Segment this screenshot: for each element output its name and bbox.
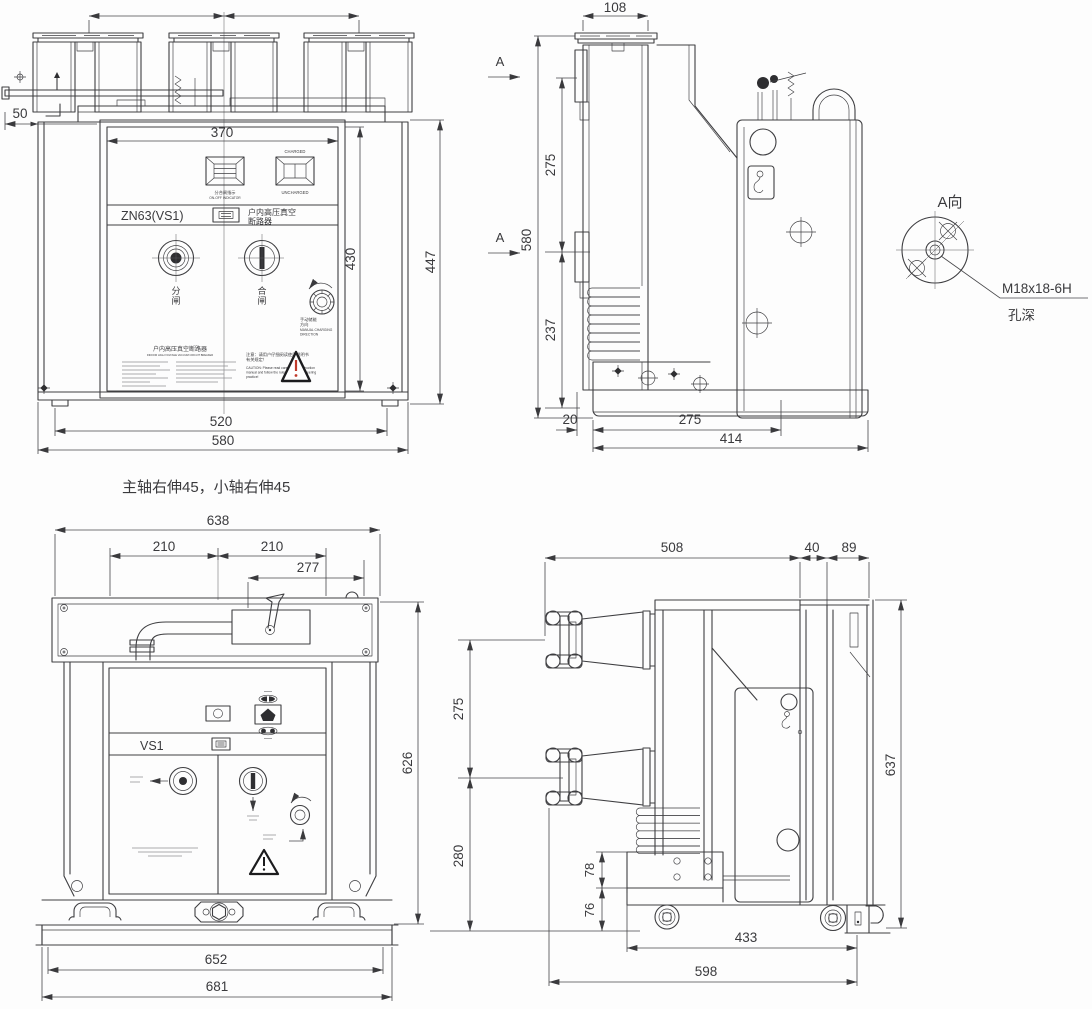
dim-275-upper: 275 bbox=[543, 154, 558, 177]
dim-598: 598 bbox=[695, 964, 718, 979]
caution-cn-line2: 有关规定！ bbox=[246, 356, 267, 363]
dim-210-left: 210 bbox=[153, 539, 176, 554]
counter-window-icon bbox=[206, 706, 230, 721]
terminal-bracket bbox=[627, 852, 790, 888]
plate-screws bbox=[61, 605, 370, 656]
dim-76: 76 bbox=[582, 903, 597, 917]
manual-charging-en1: MANUAL CHARGING bbox=[300, 328, 333, 332]
dim-50: 50 bbox=[12, 106, 27, 121]
dim-580-side: 580 bbox=[519, 229, 534, 252]
product-name-line1: 户内高压真空 bbox=[248, 207, 296, 217]
manual-charging-cn2: 方向 bbox=[300, 321, 308, 328]
hook-icon bbox=[782, 712, 790, 729]
pull-handle-icon bbox=[69, 903, 121, 920]
dim-520: 520 bbox=[210, 414, 233, 429]
conduit-elbow bbox=[130, 622, 232, 660]
uncharged-label: UNCHARGED bbox=[282, 190, 309, 195]
bottom-side-view: 508 40 89 bbox=[430, 540, 907, 986]
dim-580: 580 bbox=[212, 433, 235, 448]
dim-430: 430 bbox=[343, 248, 358, 271]
section-a-bottom: A bbox=[496, 230, 505, 245]
drawing-sheet: 370 分合闸指示 ON-OFF INDICATOR CHARGED UNCHA… bbox=[0, 0, 1092, 1009]
dim-637: 637 bbox=[883, 754, 898, 777]
dim-681: 681 bbox=[206, 979, 229, 994]
a-direction-view: A向 M18x18-6H 孔深 bbox=[896, 194, 1088, 323]
side-view: 108 A A bbox=[488, 0, 868, 452]
close-label-2: 闸 bbox=[257, 296, 266, 306]
close-button-icon bbox=[238, 234, 284, 282]
caution-en-line3: practice! bbox=[246, 375, 259, 379]
dim-89: 89 bbox=[841, 540, 856, 555]
model-label-vs1: VS1 bbox=[140, 739, 164, 753]
close-label-1: 合 bbox=[257, 285, 266, 296]
center-lock-plate bbox=[195, 902, 243, 922]
dim-210-right: 210 bbox=[261, 539, 284, 554]
warning-triangle-icon bbox=[250, 850, 278, 874]
bottom-front-view: 638 210 210 277 bbox=[36, 513, 424, 1001]
dim-275-base: 275 bbox=[679, 412, 702, 427]
dim-78: 78 bbox=[582, 863, 597, 877]
model-label: ZN63(VS1) bbox=[121, 209, 184, 223]
thread-spec-label: M18x18-6H bbox=[1002, 281, 1072, 296]
front-view: 370 分合闸指示 ON-OFF INDICATOR CHARGED UNCHA… bbox=[2, 12, 444, 454]
onoff-label-en: ON-OFF INDICATOR bbox=[209, 196, 241, 200]
hook-icon bbox=[748, 166, 774, 199]
breaker-outline-drawing: 370 分合闸指示 ON-OFF INDICATOR CHARGED UNCHA… bbox=[0, 0, 1092, 1009]
nameplate-subtitle: INDOOR HIGH VOLTAGE VACUUM CIRCUIT BREAK… bbox=[147, 353, 213, 357]
a-view-title: A向 bbox=[937, 194, 962, 211]
insulator-fins bbox=[636, 808, 700, 854]
dim-108: 108 bbox=[604, 0, 627, 15]
hole-depth-label: 孔深 bbox=[1008, 308, 1035, 323]
rear-wheel-icon bbox=[821, 906, 846, 931]
charging-knob-icon bbox=[309, 283, 334, 314]
dim-414: 414 bbox=[720, 431, 743, 446]
pin-hole-icon bbox=[908, 259, 926, 277]
spring-state-indicators bbox=[255, 692, 281, 739]
spring-mechanism bbox=[757, 72, 855, 120]
charging-knob-icon bbox=[263, 797, 311, 841]
dim-275-arm: 275 bbox=[451, 698, 466, 721]
pull-handle-icon bbox=[313, 903, 365, 920]
charged-label: CHARGED bbox=[285, 149, 306, 154]
open-button-icon bbox=[130, 768, 197, 795]
interlock-bracket bbox=[232, 594, 310, 644]
front-wheel-icon bbox=[655, 905, 679, 929]
dim-433: 433 bbox=[735, 930, 758, 945]
onoff-indicator-icon bbox=[206, 157, 244, 185]
dim-277: 277 bbox=[297, 560, 320, 575]
dim-237: 237 bbox=[543, 319, 558, 342]
dim-447: 447 bbox=[423, 251, 438, 274]
charged-indicator-icon bbox=[276, 157, 314, 185]
open-button-icon bbox=[152, 234, 200, 282]
upper-contact-arm bbox=[546, 611, 655, 669]
onoff-label-cn: 分合闸指示 bbox=[215, 189, 236, 196]
insulator-fins bbox=[588, 288, 641, 360]
dim-508: 508 bbox=[661, 540, 684, 555]
dim-626: 626 bbox=[400, 752, 415, 775]
nameplate: 户内高压真空断路器 INDOOR HIGH VOLTAGE VACUUM CIR… bbox=[122, 345, 236, 386]
dim-652: 652 bbox=[205, 952, 228, 967]
dim-638: 638 bbox=[207, 513, 230, 528]
rear-latch-bracket bbox=[845, 905, 890, 933]
dim-280: 280 bbox=[451, 845, 466, 868]
dim-20: 20 bbox=[562, 412, 577, 427]
main-shaft bbox=[2, 71, 223, 116]
nameplate-title: 户内高压真空断路器 bbox=[153, 345, 207, 353]
open-label-1: 分 bbox=[171, 286, 180, 296]
section-a-top: A bbox=[496, 54, 505, 69]
close-button-icon bbox=[240, 768, 267, 821]
dim-40: 40 bbox=[804, 540, 819, 555]
shaft-note: 主轴右伸45，小轴右伸45 bbox=[122, 479, 290, 496]
brand-emblem-icon bbox=[213, 208, 239, 222]
manual-charging-en2: DIRECTION bbox=[300, 333, 319, 337]
open-label-2: 闸 bbox=[171, 296, 180, 306]
lower-contact-arm bbox=[546, 748, 655, 806]
product-name-line2: 断路器 bbox=[248, 216, 272, 226]
brand-emblem-icon bbox=[212, 738, 230, 750]
dim-370: 370 bbox=[211, 125, 234, 140]
caution-block: 注意：请用户仔细阅读使用说明书 有关规定！ CAUTION: Please re… bbox=[246, 351, 316, 381]
